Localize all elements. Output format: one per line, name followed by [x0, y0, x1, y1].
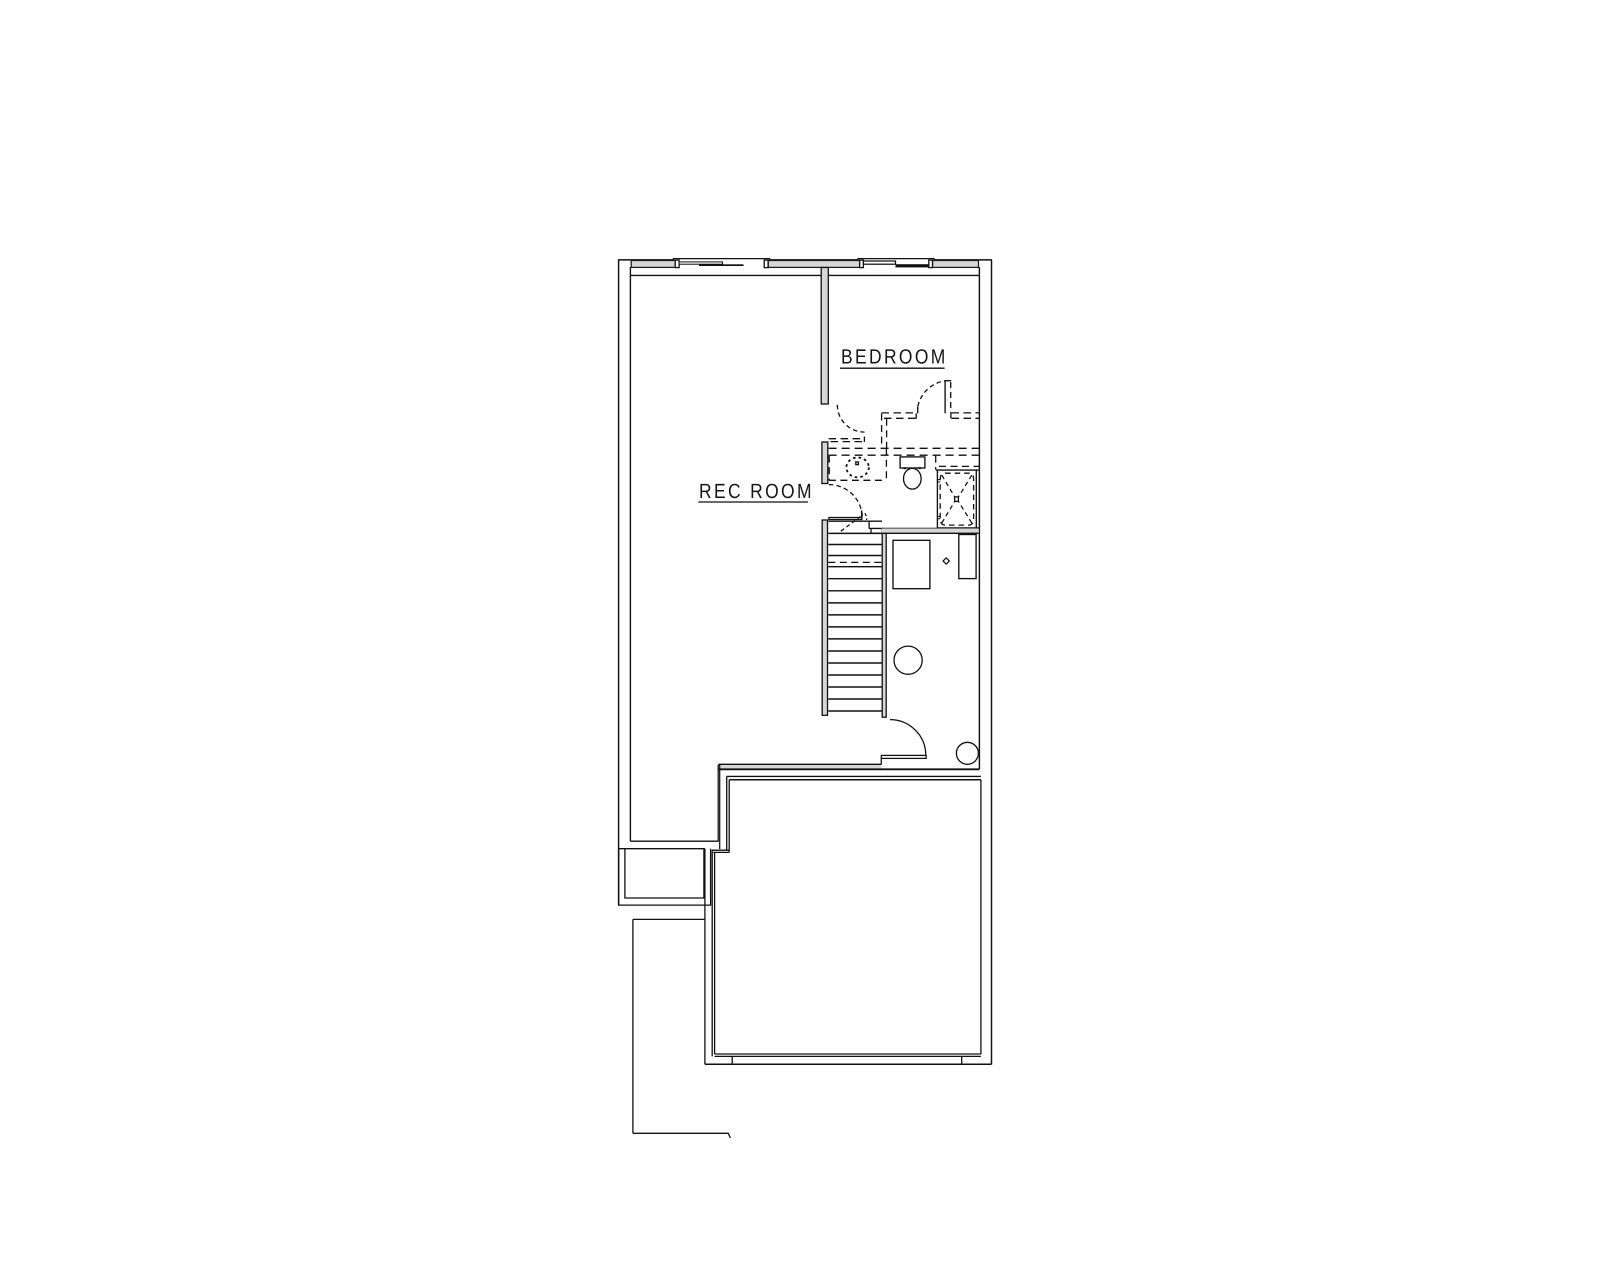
svg-text:BEDROOM: BEDROOM: [841, 345, 948, 368]
svg-text:REC ROOM: REC ROOM: [699, 480, 814, 503]
